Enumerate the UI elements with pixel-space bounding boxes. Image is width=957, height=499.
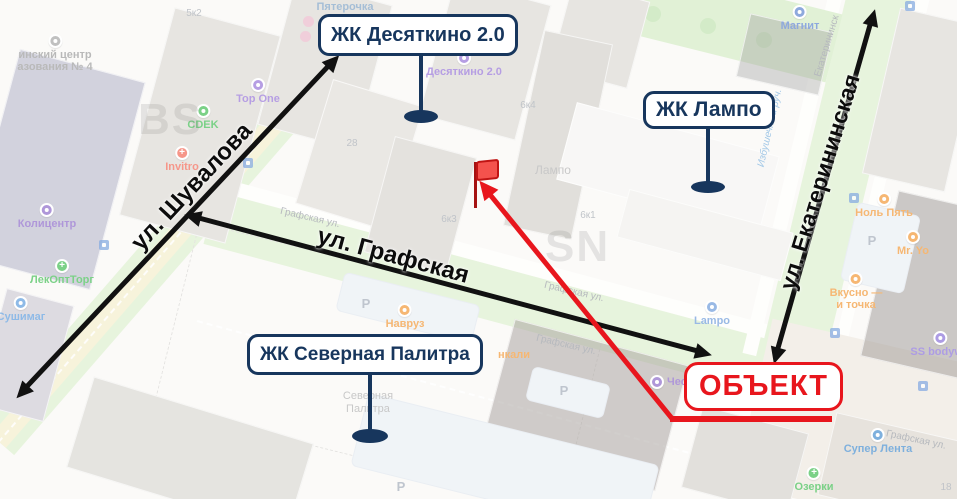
transit-stop-icon (243, 158, 253, 168)
poi-mr-yo: Mr. Yo (897, 230, 929, 257)
poi-label: Вкусно — (830, 287, 883, 299)
fastfood-icon (849, 272, 863, 286)
bar-icon (877, 192, 891, 206)
poi-education-center: инский центр азования № 4 (17, 34, 92, 73)
poi-ches-partial: Чес (650, 375, 687, 389)
parking-letter: P (560, 383, 569, 398)
pin-line-lampo (706, 127, 710, 183)
clinic-icon (175, 146, 189, 160)
parking-letter: P (397, 479, 406, 494)
grocery-icon (793, 5, 807, 19)
transit-stop-icon (99, 240, 109, 250)
hidden-poi-icon (300, 31, 311, 42)
garlic-icon (650, 375, 664, 389)
label-zk-lampo: ЖК Лампо (643, 91, 775, 129)
poi-label: Сушимаг (0, 311, 45, 323)
residential-complex-icon (705, 300, 719, 314)
poi-label: Навруз (386, 318, 425, 330)
building-number: 6к4 (520, 100, 536, 111)
poi-label: инский центр (18, 49, 91, 61)
building-label-lampo: Лампо (535, 164, 571, 177)
watermark: BS (138, 95, 203, 145)
transit-stop-icon (905, 1, 915, 11)
fitness-icon (933, 331, 947, 345)
pharmacy-icon (807, 466, 821, 480)
poi-label: Пятерочка (316, 1, 373, 13)
parking-letter: P (362, 296, 371, 311)
area-label-text: Лампо (535, 163, 571, 177)
poi-label: Lampo (694, 315, 730, 327)
car-service-icon (40, 203, 54, 217)
building-number: 6к1 (580, 210, 596, 221)
poi-top-one: Top One (236, 78, 280, 105)
store-icon (14, 296, 28, 310)
poi-label: Top One (236, 93, 280, 105)
poi-label: Mr. Yo (897, 245, 929, 257)
poi-label: Супер Лента (844, 443, 913, 455)
label-zk-sev-palitra: ЖК Северная Палитра (247, 334, 483, 375)
poi-label: нкали (498, 349, 530, 361)
poi-ozerki: Озерки (795, 466, 834, 493)
restaurant-icon (398, 303, 412, 317)
poi-khinkali-partial: нкали (498, 349, 530, 361)
poi-label: азования № 4 (17, 61, 92, 73)
poi-label: ЛекОптТорг (30, 274, 94, 286)
object-red-line (670, 416, 832, 422)
poi-label: Озерки (795, 481, 834, 493)
poi-ss-bodyworks: SS bodywo (910, 331, 957, 358)
transit-stop-icon (918, 381, 928, 391)
annotated-map-canvas: инский центр азования № 4 Пятерочка Top … (0, 0, 957, 499)
tree (700, 18, 716, 34)
poi-label: и точка (836, 299, 876, 311)
pin-base-lampo (691, 181, 725, 193)
poi-navruz: Навруз (386, 303, 425, 330)
watermark: SN (545, 222, 610, 272)
barbershop-icon (251, 78, 265, 92)
label-object: ОБЪЕКТ (684, 362, 843, 411)
poi-label: SS bodywo (910, 346, 957, 358)
poi-label: Ноль Пять (855, 207, 913, 219)
building-number: 28 (346, 138, 357, 149)
poi-sushimag: Сушимаг (0, 296, 45, 323)
poi-nol-pyat: Ноль Пять (855, 192, 913, 219)
pin-line-sev-palitra (368, 373, 372, 431)
poi-pyaterochka: Пятерочка (316, 1, 373, 13)
pharmacy-icon (55, 259, 69, 273)
poi-vkusno-i-tochka: Вкусно — и точка (830, 272, 883, 311)
pin-line-desyatkino (419, 54, 423, 112)
pin-base-sev-palitra (352, 429, 388, 443)
supermarket-icon (871, 428, 885, 442)
school-icon (48, 34, 62, 48)
pin-base-desyatkino (404, 110, 438, 123)
building-number: 18 (940, 482, 951, 493)
poi-label: Магнит (781, 20, 820, 32)
parking-letter: P (868, 233, 877, 248)
poi-lampo-latin: Lampo (694, 300, 730, 327)
building-number: 5к2 (186, 8, 202, 19)
poi-kolitsentr: Колицентр (18, 203, 77, 230)
poi-lekopttorg: ЛекОптТорг (30, 259, 94, 286)
label-zk-desyatkino: ЖК Десяткино 2.0 (318, 14, 518, 56)
object-location-flag-icon (476, 159, 499, 181)
poi-label: Колицентр (18, 218, 77, 230)
hidden-poi-icon (303, 16, 314, 27)
building-number: 6к3 (441, 214, 457, 225)
poi-label: Десяткино 2.0 (426, 66, 502, 78)
poi-magnit: Магнит (781, 5, 820, 32)
building-school (0, 49, 146, 290)
cafe-icon (906, 230, 920, 244)
transit-stop-icon (830, 328, 840, 338)
